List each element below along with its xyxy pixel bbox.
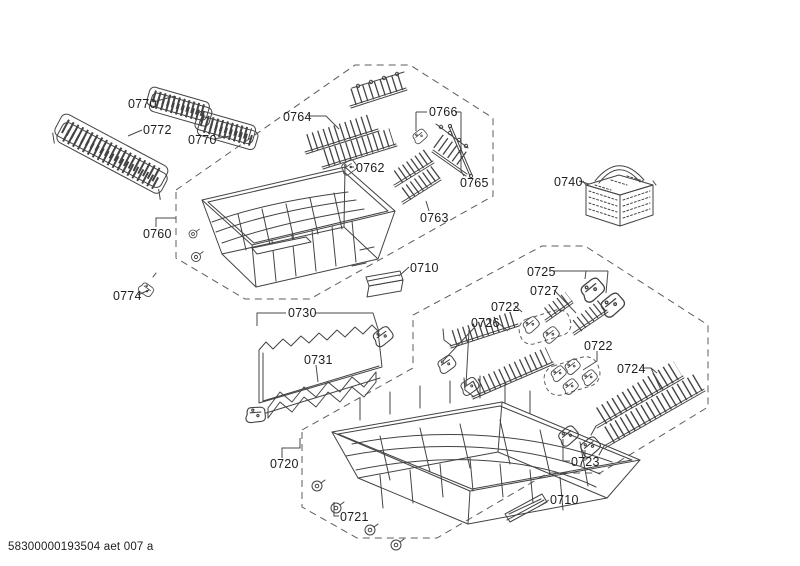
part-label-0764: 0764 xyxy=(283,111,312,123)
part-0763-tine-rows xyxy=(394,155,441,204)
part-label-0723: 0723 xyxy=(571,456,600,468)
part-label-0772: 0772 xyxy=(143,124,172,136)
part-label-0720: 0720 xyxy=(270,458,299,470)
part-label-0710-upper: 0710 xyxy=(410,262,439,274)
part-label-0726: 0726 xyxy=(471,317,500,329)
part-0740-cutlery-basket xyxy=(583,166,656,226)
part-label-0725: 0725 xyxy=(527,266,556,278)
part-0726-tine-rows xyxy=(437,319,554,399)
part-0724-tine-rows xyxy=(591,369,705,455)
part-0722-clips-upper xyxy=(522,315,561,344)
document-number: 58300000193504 aet 007 a xyxy=(8,541,154,553)
part-label-0731: 0731 xyxy=(304,354,333,366)
part-label-0722-lower: 0722 xyxy=(584,340,613,352)
part-label-0760: 0760 xyxy=(143,228,172,240)
part-label-0740: 0740 xyxy=(554,176,583,188)
diagram-canvas xyxy=(0,0,800,566)
part-label-0730: 0730 xyxy=(288,307,317,319)
part-0710-tray-upper xyxy=(366,271,403,297)
part-label-0770-bottom: 0770 xyxy=(188,134,217,146)
parts-diagram-page: 0770 0772 0770 0760 0774 0764 0762 0766 … xyxy=(0,0,800,566)
part-label-0763: 0763 xyxy=(420,212,449,224)
part-label-0721: 0721 xyxy=(340,511,369,523)
dashed-outline-clip-set-2 xyxy=(541,353,603,398)
part-0722-clips-lower xyxy=(550,358,599,396)
part-label-0722-upper: 0722 xyxy=(491,301,520,313)
part-label-0766: 0766 xyxy=(429,106,458,118)
part-label-0727: 0727 xyxy=(530,285,559,297)
dashed-boundary-upper-rack-group xyxy=(176,65,493,299)
part-label-0770-top: 0770 xyxy=(128,98,157,110)
part-0731-folding-shelf xyxy=(266,372,380,418)
part-0710-panel-lower xyxy=(505,494,547,522)
part-label-0774: 0774 xyxy=(113,290,142,302)
part-label-0765: 0765 xyxy=(460,177,489,189)
part-0720-lower-rack xyxy=(332,376,640,524)
dashed-outline-clip-set-1 xyxy=(516,307,573,347)
part-label-0762: 0762 xyxy=(356,162,385,174)
part-0760-upper-rack xyxy=(189,167,395,287)
part-0727-tine-rows xyxy=(545,297,608,335)
part-label-0724: 0724 xyxy=(617,363,646,375)
part-label-0710-lower: 0710 xyxy=(550,494,579,506)
part-0766-clip xyxy=(412,128,429,145)
leader-lines xyxy=(128,96,661,516)
